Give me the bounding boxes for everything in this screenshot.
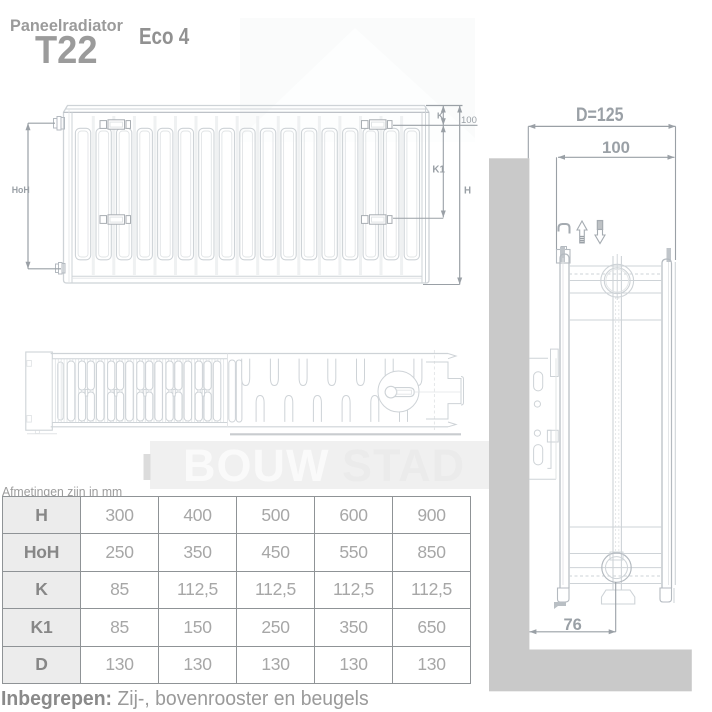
svg-text:76: 76 xyxy=(564,616,582,634)
svg-text:K: K xyxy=(437,111,444,121)
svg-text:BOUW: BOUW xyxy=(183,440,329,491)
svg-text:100: 100 xyxy=(602,138,630,157)
svg-text:K1: K1 xyxy=(432,165,445,176)
svg-text:H: H xyxy=(464,185,471,196)
svg-text:STAD: STAD xyxy=(342,440,465,491)
svg-text:100: 100 xyxy=(461,115,477,126)
svg-text:D=125: D=125 xyxy=(576,105,624,126)
svg-text:HoH: HoH xyxy=(12,185,30,195)
